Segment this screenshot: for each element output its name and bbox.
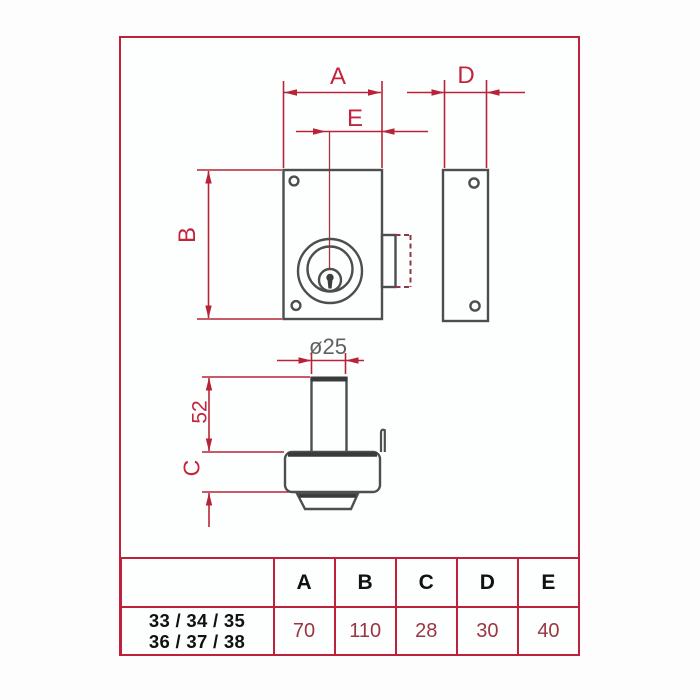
table-corner-cell bbox=[122, 559, 273, 606]
model-range-line1: 33 / 34 / 35 bbox=[149, 610, 245, 631]
dim-C bbox=[202, 492, 297, 527]
dim-A bbox=[284, 81, 383, 168]
table-header-D: D bbox=[456, 559, 517, 606]
lock-front-view bbox=[284, 170, 396, 319]
table-header-E: E bbox=[517, 559, 578, 606]
cam-hook bbox=[381, 430, 385, 452]
model-range-label: 33 / 34 / 35 36 / 37 / 38 bbox=[122, 606, 273, 654]
lock-side-view bbox=[285, 377, 385, 509]
dim-label-A: A bbox=[330, 65, 346, 89]
value-D: 30 bbox=[456, 606, 517, 654]
case-side bbox=[285, 452, 380, 492]
lock-body bbox=[284, 170, 383, 319]
screw-hole bbox=[470, 301, 479, 310]
dim-B bbox=[197, 170, 282, 319]
dim-label-C: C bbox=[181, 460, 204, 477]
table-header-B: B bbox=[334, 559, 395, 606]
bolt bbox=[382, 235, 396, 287]
dim-label-52: 52 bbox=[190, 400, 211, 423]
bolt-thrown-dashed bbox=[396, 235, 411, 287]
screw-hole bbox=[290, 177, 299, 186]
screw-hole bbox=[292, 301, 301, 310]
dim-label-D: D bbox=[457, 64, 474, 88]
model-range-line2: 36 / 37 / 38 bbox=[149, 631, 245, 652]
dim-52 bbox=[202, 377, 310, 452]
table-header-A: A bbox=[273, 559, 334, 606]
dim-label-diameter: ø25 bbox=[309, 336, 347, 358]
lock-dimension-sheet: A E D B ø25 52 C A B C D E 33 / 34 / 35 … bbox=[0, 0, 700, 700]
dim-D bbox=[407, 80, 525, 168]
value-B: 110 bbox=[334, 606, 395, 654]
dim-label-B: B bbox=[176, 227, 200, 243]
table-header-C: C bbox=[395, 559, 456, 606]
strike-plate bbox=[443, 170, 488, 321]
value-C: 28 bbox=[395, 606, 456, 654]
screw-hole bbox=[469, 178, 478, 187]
value-E: 40 bbox=[517, 606, 578, 654]
spec-table: A B C D E 33 / 34 / 35 36 / 37 / 38 70 1… bbox=[120, 557, 581, 656]
dim-label-E: E bbox=[347, 107, 363, 131]
value-A: 70 bbox=[273, 606, 334, 654]
keyhole bbox=[326, 274, 333, 289]
